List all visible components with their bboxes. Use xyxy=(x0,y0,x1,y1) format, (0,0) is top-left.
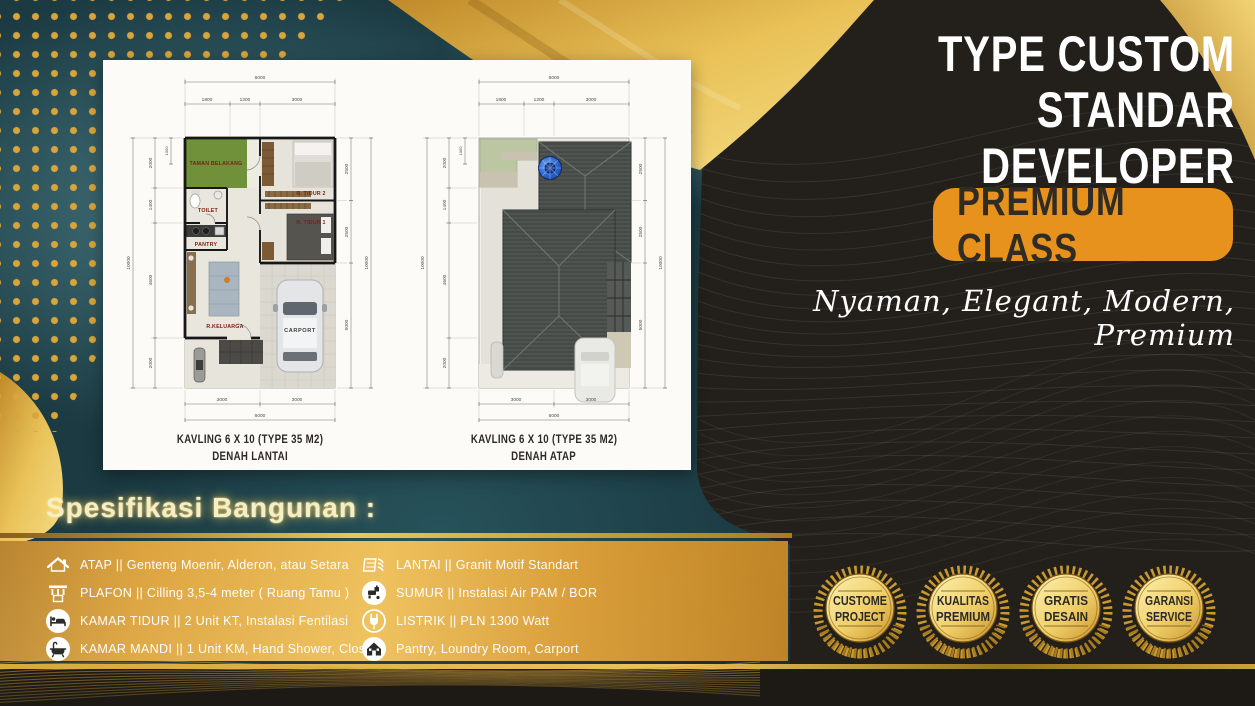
dim-label: 10000 xyxy=(126,256,132,270)
spec-column-left: ATAP || Genteng Moenir, Alderon, atau Se… xyxy=(44,551,380,663)
dim-label: 1800 xyxy=(202,97,213,103)
water-tank xyxy=(539,157,562,180)
ceiling-icon xyxy=(44,580,71,607)
dim-label: 5000 xyxy=(344,319,350,330)
floor-tile-icon xyxy=(360,552,387,579)
dim-label: 1050 xyxy=(164,146,169,156)
floor-plan-drawing: TAMAN BELAKANG R. TIDUR 2 TOILET PANTRY … xyxy=(115,64,385,426)
house-icon xyxy=(360,636,387,663)
dim-label: 1050 xyxy=(458,146,463,156)
medal-text-2: PREMIUM xyxy=(936,609,990,624)
plan-caption-denah-atap: DENAH ATAP xyxy=(409,447,679,465)
dim-label: 2000 xyxy=(442,157,448,168)
floor-plan-figure: TAMAN BELAKANG R. TIDUR 2 TOILET PANTRY … xyxy=(115,64,385,466)
spec-text: LANTAI || Granit Motif Standart xyxy=(396,558,578,572)
dim-label: 3000 xyxy=(586,397,597,403)
car-carport xyxy=(273,280,327,372)
spec-item: KAMAR TIDUR || 2 Unit KT, Instalasi Fent… xyxy=(44,607,380,635)
spec-text: LISTRIK || PLN 1300 Watt xyxy=(396,614,549,628)
room-label-pantry: PANTRY xyxy=(195,242,218,248)
dim-label: 2500 xyxy=(638,163,644,174)
spec-item: ATAP || Genteng Moenir, Alderon, atau Se… xyxy=(44,551,380,579)
dim-label: 2000 xyxy=(148,157,154,168)
dim-label: 10000 xyxy=(420,256,426,270)
spec-heading: Spesifikasi Bangunan : xyxy=(46,492,376,524)
spec-item: SUMUR || Instalasi Air PAM / BOR xyxy=(360,579,597,607)
medal-text-2: DESAIN xyxy=(1044,609,1088,624)
dim-label: 2500 xyxy=(344,163,350,174)
spec-text: PLAFON || Cilling 3,5-4 meter ( Ruang Ta… xyxy=(80,586,349,600)
dim-label: 3000 xyxy=(292,397,303,403)
room-label-tidur2: R. TIDUR 2 xyxy=(296,191,325,197)
medal-kualitas-premium: KUALITAS PREMIUM xyxy=(913,560,1013,664)
medal-custome-project: CUSTOME PROJECT xyxy=(810,560,910,664)
roof-plan-figure: 6000 1800 1200 3000 10000 2000 1400 4600… xyxy=(409,64,679,466)
room-label-carport: CARPORT xyxy=(284,328,316,334)
dim-label: 1200 xyxy=(240,97,251,103)
dim-label: 10000 xyxy=(658,256,664,270)
dim-label: 3000 xyxy=(217,397,228,403)
medal-text-1: KUALITAS xyxy=(937,593,989,608)
dim-label: 4600 xyxy=(442,274,448,285)
dim-label: 2000 xyxy=(442,357,448,368)
spec-text: ATAP || Genteng Moenir, Alderon, atau Se… xyxy=(80,558,349,572)
dim-label: 2500 xyxy=(638,226,644,237)
bathtub-icon xyxy=(44,636,71,663)
dim-label: 3000 xyxy=(511,397,522,403)
plan-caption-kavling: KAVLING 6 X 10 (TYPE 35 M2) xyxy=(409,430,679,448)
spec-item: Pantry, Loundry Room, Carport xyxy=(360,635,597,663)
dim-label: 1200 xyxy=(534,97,545,103)
dim-label: 1800 xyxy=(496,97,507,103)
plan-caption-kavling: KAVLING 6 X 10 (TYPE 35 M2) xyxy=(115,430,385,448)
spec-column-right: LANTAI || Granit Motif Standart SUMUR ||… xyxy=(360,551,597,663)
roof-plan-drawing: 6000 1800 1200 3000 10000 2000 1400 4600… xyxy=(409,64,679,426)
tagline-script: Nyaman, Elegant, Modern, Premium xyxy=(765,284,1235,352)
plans-panel: TAMAN BELAKANG R. TIDUR 2 TOILET PANTRY … xyxy=(103,60,691,470)
spec-text: KAMAR TIDUR || 2 Unit KT, Instalasi Fent… xyxy=(80,614,348,628)
premium-class-label: PREMIUM CLASS xyxy=(957,178,1209,272)
dim-label: 10000 xyxy=(364,256,370,270)
dim-label: 3000 xyxy=(292,97,303,103)
medal-text-1: GARANSI xyxy=(1145,593,1193,608)
medal-text-1: GRATIS xyxy=(1044,593,1088,608)
spec-text: SUMUR || Instalasi Air PAM / BOR xyxy=(396,586,597,600)
dim-label: 6000 xyxy=(549,75,560,81)
medal-text-2: SERVICE xyxy=(1146,609,1192,624)
band-top-stripe xyxy=(0,533,792,538)
room-label-toilet: TOILET xyxy=(198,208,219,214)
faucet-icon xyxy=(360,580,387,607)
medal-garansi-service: GARANSI SERVICE xyxy=(1119,560,1219,664)
medal-gratis-desain: GRATIS DESAIN xyxy=(1016,560,1116,664)
roof-icon xyxy=(44,552,71,579)
spec-text: KAMAR MANDI || 1 Unit KM, Hand Shower, C… xyxy=(80,642,380,656)
room-label-taman-belakang: TAMAN BELAKANG xyxy=(189,161,242,167)
dim-label: 3000 xyxy=(586,97,597,103)
dim-label: 2500 xyxy=(344,226,350,237)
dim-label: 6000 xyxy=(255,413,266,419)
dim-label: 4600 xyxy=(148,274,154,285)
medal-text-1: CUSTOME xyxy=(833,593,887,608)
medal-text-2: PROJECT xyxy=(835,609,885,624)
dim-label: 6000 xyxy=(549,413,560,419)
dim-label: 6000 xyxy=(255,75,266,81)
premium-class-badge: PREMIUM CLASS xyxy=(933,188,1233,261)
title-line-1: TYPE CUSTOM xyxy=(787,26,1235,82)
room-label-tidur1: R. TIDUR 1 xyxy=(296,220,325,226)
spec-item: KAMAR MANDI || 1 Unit KM, Hand Shower, C… xyxy=(44,635,380,663)
spec-item: LISTRIK || PLN 1300 Watt xyxy=(360,607,597,635)
medal-row: CUSTOME PROJECT KUALITAS PREMIUM GRATIS … xyxy=(810,560,1219,664)
room-label-keluarga: R.KELUARGA xyxy=(206,324,243,330)
dim-label: 1400 xyxy=(148,199,154,210)
dim-label: 5000 xyxy=(638,319,644,330)
bed-icon xyxy=(44,608,71,635)
page-title: TYPE CUSTOM STANDAR DEVELOPER xyxy=(787,26,1235,194)
plug-icon xyxy=(360,608,387,635)
spec-item: PLAFON || Cilling 3,5-4 meter ( Ruang Ta… xyxy=(44,579,380,607)
spec-text: Pantry, Loundry Room, Carport xyxy=(396,642,579,656)
dim-label: 2000 xyxy=(148,357,154,368)
plan-caption-denah-lantai: DENAH LANTAI xyxy=(115,447,385,465)
spec-item: LANTAI || Granit Motif Standart xyxy=(360,551,597,579)
flyer-canvas: TAMAN BELAKANG R. TIDUR 2 TOILET PANTRY … xyxy=(0,0,1255,706)
dim-label: 1400 xyxy=(442,199,448,210)
